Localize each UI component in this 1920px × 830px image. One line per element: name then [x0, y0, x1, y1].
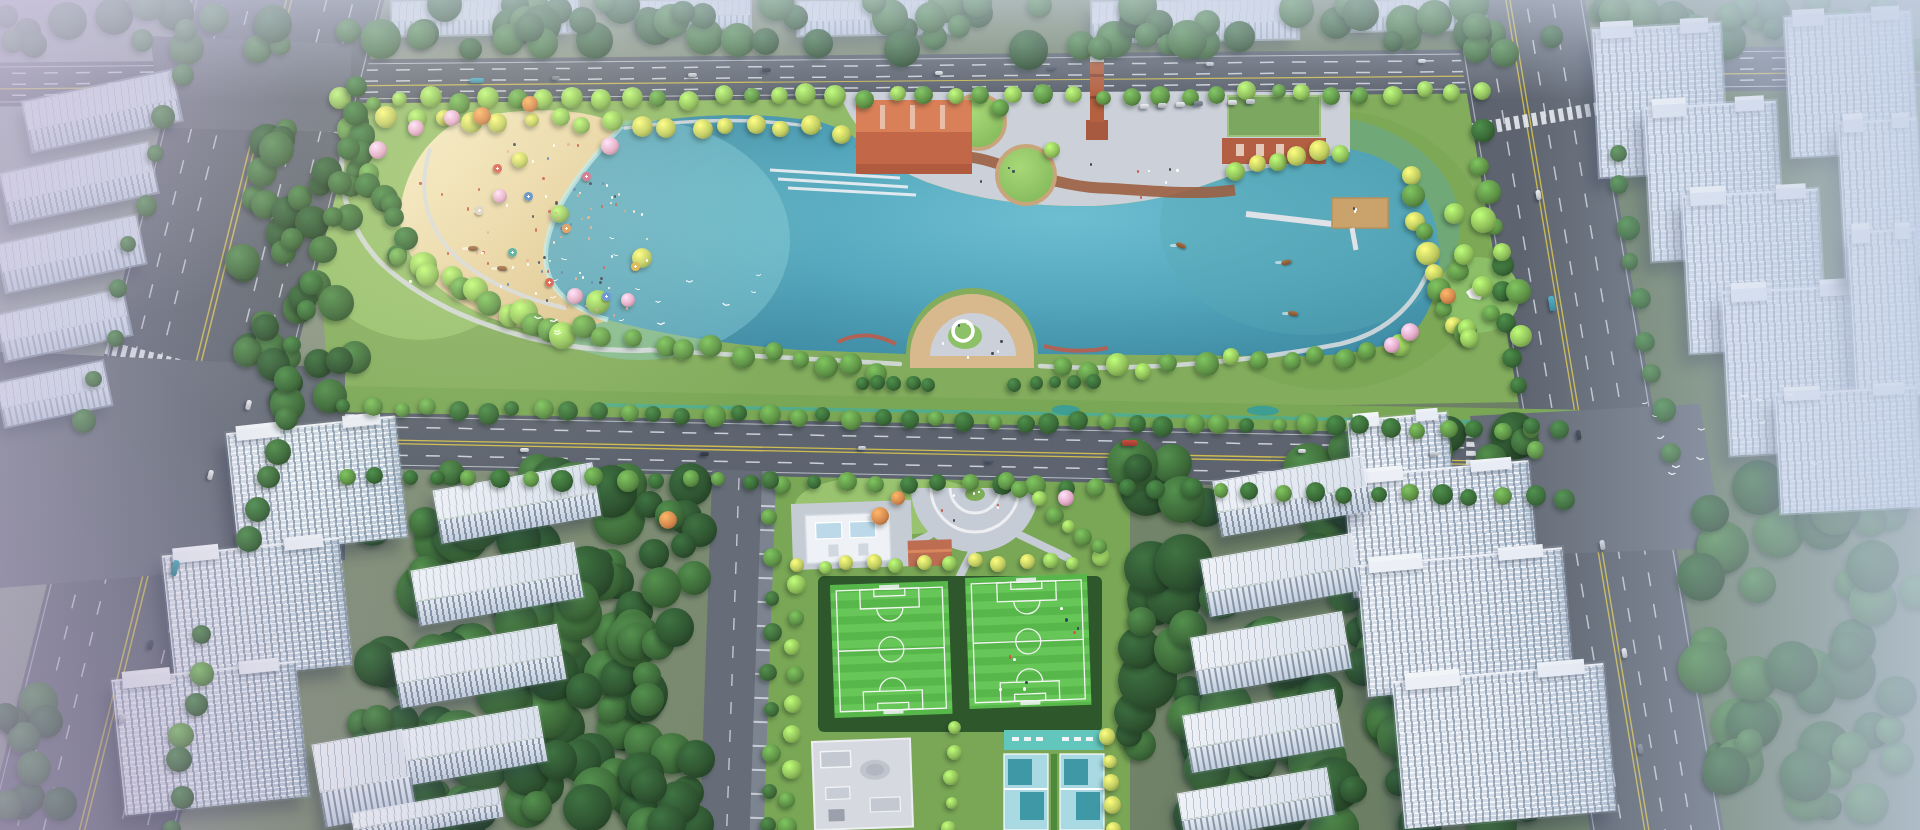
football-players	[1023, 687, 1026, 690]
top-street-trees-south	[855, 90, 874, 109]
vehicle	[688, 73, 697, 77]
main-road-south-trees	[1526, 485, 1547, 506]
sports-north-row	[968, 553, 983, 568]
blossom-tree	[444, 110, 460, 126]
right-avenue-west-trees	[1510, 377, 1527, 394]
bird	[1642, 402, 1648, 405]
bird	[1696, 456, 1704, 461]
beach-crowd	[614, 195, 616, 198]
bird	[756, 274, 761, 277]
center-left-forest	[566, 673, 602, 709]
beach-crowd	[500, 285, 502, 288]
main-road-north-trees	[1152, 416, 1173, 437]
top-band-forest	[948, 15, 970, 37]
main-road-north-trees	[1494, 423, 1511, 440]
swimmers	[566, 305, 568, 308]
swimmers	[579, 192, 581, 195]
right-block-forest-east	[1831, 632, 1869, 670]
right-pocket-park	[1510, 325, 1532, 347]
bird	[561, 258, 567, 262]
vehicle	[1418, 59, 1426, 63]
main-road-north-trees	[645, 406, 661, 422]
main-road-south-trees	[584, 467, 603, 486]
left-avenue-east-trees	[328, 171, 352, 195]
bird	[751, 291, 756, 294]
main-road-north-trees	[1297, 413, 1318, 434]
south-plaza-visitors	[953, 519, 955, 522]
football-players	[1060, 607, 1063, 610]
top-street-trees-south	[1237, 81, 1256, 100]
north-park-strip	[772, 121, 789, 138]
beach-umbrella	[545, 278, 554, 287]
right-avenue-east-trees	[1635, 332, 1655, 352]
beach-crowd	[487, 262, 489, 265]
boat	[1176, 241, 1187, 249]
beach-umbrella	[602, 292, 611, 301]
street-west-forest	[641, 567, 682, 608]
top-street-trees-south	[1123, 88, 1141, 106]
main-road-south-trees	[339, 469, 355, 485]
northeast-shore	[1249, 155, 1267, 173]
main-road-north-trees	[1208, 414, 1229, 435]
northeast-shore	[1332, 145, 1350, 163]
beach-crowd	[603, 266, 605, 269]
main-road-north-trees	[1465, 420, 1484, 439]
top-street-trees-south	[622, 87, 643, 108]
beach-crowd	[589, 182, 591, 185]
vehicle	[1228, 100, 1237, 105]
center-left-forest	[597, 694, 626, 723]
south-shore-east	[1054, 357, 1073, 376]
top-street-trees-south	[948, 88, 964, 104]
plaza-north-visitors	[1008, 167, 1010, 170]
bird	[619, 318, 625, 321]
northeast-shore	[1287, 146, 1307, 166]
beach-crowd	[506, 204, 508, 207]
beach-crowd	[487, 231, 489, 234]
south-plaza-visitors	[973, 492, 975, 495]
south-shore-east	[1358, 342, 1376, 360]
south-shore-west	[815, 355, 839, 379]
sports-west-column	[779, 792, 795, 808]
bird	[655, 301, 661, 303]
left-avenue-west-trees	[172, 64, 194, 86]
plaza-north-visitors	[1169, 168, 1171, 171]
swimmers	[646, 238, 648, 241]
north-park-strip	[747, 115, 766, 134]
top-band-forest	[1135, 23, 1159, 47]
top-street-trees-south	[649, 90, 666, 107]
main-road-south-trees	[1119, 479, 1136, 496]
promenade-visitors	[997, 350, 999, 353]
promenade-visitors	[1000, 340, 1002, 343]
right-block-forest-west	[1127, 607, 1156, 636]
southeast-plaza-trees	[1032, 491, 1047, 506]
top-street-trees-south	[1272, 84, 1286, 98]
top-street-trees-south	[795, 83, 816, 104]
vehicle	[552, 76, 560, 80]
plaza-north-visitors	[1165, 181, 1167, 184]
plaza-north-visitors	[1012, 170, 1014, 173]
blossom-tree	[1384, 337, 1400, 353]
west-shore-lower	[477, 291, 502, 316]
sports-north-row	[888, 558, 903, 573]
south-shore-east	[1159, 354, 1177, 372]
left-avenue-east-trees	[274, 366, 301, 393]
main-road-south-trees	[807, 475, 821, 489]
north-park-strip	[552, 108, 570, 126]
bird	[657, 322, 665, 326]
west-shore-lower	[389, 248, 407, 266]
left-avenue-east-trees	[337, 137, 360, 160]
left-avenue-east-trees	[309, 236, 336, 263]
beach-crowd	[599, 281, 601, 284]
main-road-north-trees	[1017, 415, 1035, 433]
south-shore-east	[1250, 351, 1267, 368]
south-plaza-visitors	[941, 509, 943, 512]
top-band-forest	[48, 2, 87, 41]
north-park-strip	[602, 111, 623, 132]
swimmers	[641, 213, 643, 216]
beach-crowd	[555, 201, 557, 204]
top-street-trees-south	[771, 87, 788, 104]
beach-crowd	[561, 271, 563, 274]
right-block-forest-east	[1703, 747, 1750, 794]
top-band-forest	[516, 13, 545, 42]
football-players	[1073, 631, 1076, 634]
northeast-shore	[1269, 153, 1287, 171]
vehicle	[147, 640, 154, 651]
sports-east-column	[1104, 796, 1122, 814]
top-street-trees-south	[1004, 86, 1021, 103]
main-road-north-trees	[449, 401, 470, 422]
right-block-forest-west	[1340, 776, 1367, 803]
top-band-forest	[20, 31, 47, 58]
top-band-forest	[1, 29, 24, 52]
football-players	[1013, 658, 1016, 661]
top-street-trees-south	[1417, 81, 1433, 97]
sports-north-row	[819, 561, 832, 574]
left-avenue-west-trees	[147, 145, 164, 162]
top-street-trees-south	[679, 91, 700, 112]
park-walkers	[481, 252, 483, 255]
vehicle	[1246, 99, 1255, 104]
plaza-north-visitors	[1176, 169, 1178, 172]
promenade-west-poplars	[906, 376, 920, 390]
center-left-forest	[563, 784, 611, 830]
blossom-tree	[601, 137, 619, 155]
southeast-plaza-trees	[1011, 481, 1028, 498]
boat	[1281, 259, 1292, 266]
right-pocket-park	[1460, 329, 1479, 348]
right-avenue-west-trees	[1471, 119, 1495, 143]
beach-crowd	[575, 277, 577, 280]
blossom-tree	[369, 141, 387, 159]
willow_yellow-tree	[512, 152, 528, 168]
sports-middle-column	[943, 770, 958, 785]
main-road-south-trees	[962, 474, 979, 491]
autumn-tree	[871, 507, 889, 525]
right-block-forest-east	[1900, 574, 1920, 610]
right-avenue-west-trees	[1477, 180, 1501, 204]
beach-crowd	[532, 215, 534, 218]
swimmers	[553, 241, 555, 244]
main-road-south-trees	[683, 470, 700, 487]
sports-west-column	[789, 610, 804, 625]
right-avenue-west-trees	[1502, 348, 1522, 368]
south-shore-east	[1284, 352, 1301, 369]
left-avenue-east-trees	[275, 407, 298, 430]
vehicle	[985, 459, 994, 463]
promenade-west-poplars	[921, 378, 935, 392]
top-right-forest	[1541, 25, 1563, 47]
top-street-trees-south	[1208, 86, 1226, 104]
left-top-slab-rows	[0, 289, 131, 361]
blossom-tree	[493, 189, 507, 203]
bird	[613, 253, 618, 257]
top-street-trees-south	[971, 86, 989, 104]
top-band-forest	[255, 7, 291, 43]
swimmers	[581, 218, 583, 221]
main-road-north-trees	[504, 401, 519, 416]
autumn-tree	[522, 96, 538, 112]
bird	[722, 302, 730, 307]
top-street-trees-south	[1096, 91, 1110, 105]
vehicle	[1575, 430, 1582, 441]
beach-crowd	[588, 237, 590, 240]
main-road-north-trees	[875, 409, 892, 426]
beach-umbrella	[582, 172, 591, 181]
main-road-south-trees	[711, 472, 725, 486]
sports-middle-column	[947, 745, 962, 760]
blossom-tree	[408, 120, 424, 136]
beach-crowd	[478, 188, 480, 191]
sports-middle-column	[941, 821, 956, 830]
right-pocket-park	[1444, 203, 1465, 224]
south-plaza-visitors	[997, 506, 999, 509]
beach-crowd	[611, 196, 613, 199]
main-road-south-trees	[1432, 484, 1453, 505]
beach-crowd	[508, 259, 510, 262]
west-shore-upper	[384, 207, 404, 227]
promenade-west-poplars	[870, 375, 885, 390]
top-band-forest	[199, 3, 229, 33]
southwest-corner-forest	[43, 787, 77, 821]
top-street-trees-south	[420, 86, 442, 108]
main-road-south-trees	[403, 470, 418, 485]
vehicle	[1122, 440, 1137, 446]
main-road-north-trees	[395, 403, 409, 417]
top-band-forest	[1027, 0, 1052, 18]
left-avenue-west-trees	[120, 236, 136, 252]
main-road-south-trees	[551, 470, 573, 492]
top-street-trees-south	[1293, 84, 1310, 101]
top-band-forest	[407, 21, 436, 50]
north-park-strip	[801, 115, 821, 135]
main-road-south-trees	[460, 470, 476, 486]
left-avenue-west-trees	[109, 279, 127, 297]
south-plaza-visitors	[953, 494, 955, 497]
beach-crowd	[602, 182, 604, 185]
right-block-forest-east	[1846, 540, 1899, 593]
right-top-towers	[1848, 228, 1920, 397]
inner-street-trees	[763, 548, 782, 567]
top-band-forest	[131, 29, 154, 52]
swimmers	[557, 217, 559, 220]
football-players	[999, 688, 1002, 691]
beach-crowd	[543, 256, 545, 259]
main-road-south-trees	[1401, 484, 1419, 502]
blossom-tree	[567, 288, 583, 304]
right-block-forest-east	[1876, 716, 1904, 744]
beach-crowd	[615, 203, 617, 206]
northeast-shore	[1309, 140, 1329, 160]
main-road-north-trees	[534, 399, 554, 419]
bird	[1697, 428, 1704, 431]
north-park-strip	[832, 125, 851, 144]
top-street-trees-south	[1352, 87, 1369, 104]
south-shore-east	[1106, 353, 1129, 376]
beach-crowd	[546, 299, 548, 302]
right-block-forest-east	[1677, 553, 1725, 601]
top-street-trees-south	[824, 85, 846, 107]
main-road-north-trees	[478, 403, 500, 425]
beach-crowd	[467, 207, 469, 210]
vehicle	[935, 71, 943, 75]
beach-crowd	[590, 226, 592, 229]
beach-umbrella	[631, 262, 640, 271]
east-shore	[1416, 223, 1433, 240]
left-top-slab-rows	[0, 143, 157, 223]
northeast-shore	[1226, 162, 1245, 181]
main-road-north-trees	[901, 410, 919, 428]
center-left-forest	[522, 791, 552, 821]
right-avenue-west-trees	[1470, 157, 1489, 176]
main-road-north-trees	[731, 405, 747, 421]
avenue-belt-forest	[259, 132, 294, 167]
right-avenue-east-trees	[1610, 145, 1627, 162]
left-avenue-bottom-trees	[163, 820, 182, 830]
right-block-forest-east	[1876, 676, 1917, 717]
left-avenue-west-trees	[85, 371, 102, 388]
beach-crowd	[507, 150, 509, 153]
vehicle	[1637, 744, 1644, 755]
top-band-forest	[459, 38, 481, 60]
left-avenue-west-trees	[175, 19, 197, 41]
top-street-trees-south	[392, 92, 406, 106]
sports-east-column	[1106, 822, 1121, 830]
main-road-north-trees	[590, 402, 608, 420]
swimmers	[646, 259, 648, 262]
main-road-north-trees	[364, 397, 383, 416]
main-road-south-trees	[929, 474, 946, 491]
beach-crowd	[538, 261, 540, 264]
north-park-strip	[693, 119, 713, 139]
main-road-south-trees	[430, 471, 445, 486]
sports-north-row	[1066, 557, 1079, 570]
beach-crowd	[553, 144, 555, 147]
right-block-forest-east	[1832, 732, 1869, 769]
right-top-towers	[1775, 386, 1920, 513]
sports-east-column	[1099, 728, 1116, 745]
beach-umbrella	[493, 164, 502, 173]
right-block-forest-east	[1881, 742, 1914, 775]
top-street-trees-south	[715, 85, 733, 103]
beach-crowd	[567, 143, 569, 146]
street-west-forest	[677, 740, 715, 778]
beach-umbrella	[508, 248, 517, 257]
west-shore-lower	[416, 263, 439, 286]
left-avenue-bottom-trees	[171, 786, 194, 809]
beach-crowd	[535, 292, 537, 295]
swimmers	[613, 314, 615, 317]
main-road-north-trees	[790, 409, 808, 427]
sports-north-row	[867, 554, 883, 570]
left-avenue-west-trees	[151, 105, 175, 129]
street-west-forest	[631, 768, 667, 804]
east-shore	[1416, 242, 1440, 266]
north-park-strip	[656, 118, 676, 138]
sports-north-row	[917, 555, 932, 570]
right-block-forest-east	[1846, 783, 1888, 825]
south-shore-west	[624, 329, 642, 347]
swimmers	[633, 210, 635, 213]
street-west-forest	[671, 533, 696, 558]
south-plaza-visitors	[978, 491, 980, 494]
promenade-east-poplars	[1007, 378, 1021, 392]
top-band-forest	[1417, 0, 1452, 35]
east-shore	[1402, 184, 1425, 207]
sports-east-column	[1103, 755, 1117, 769]
distance-haze	[1390, 661, 1618, 830]
generated-layer	[0, 0, 1920, 830]
main-road-south-trees	[1554, 489, 1575, 510]
plaza-north-visitors	[1137, 170, 1139, 173]
south-shore-west	[673, 339, 694, 360]
inner-street-trees	[760, 817, 777, 830]
plaza-north-visitors	[1090, 163, 1092, 166]
main-road-north-trees	[558, 401, 578, 421]
swimmers	[626, 307, 628, 310]
autumn-tree	[659, 511, 677, 529]
beach-crowd	[591, 281, 593, 284]
vehicle	[1535, 190, 1542, 201]
main-road-south-trees	[617, 470, 639, 492]
inner-street-trees	[764, 702, 779, 717]
vehicle	[1140, 104, 1149, 109]
vehicle	[1430, 452, 1439, 456]
street-west-forest	[677, 561, 711, 595]
south-shore-east	[1223, 348, 1240, 365]
avenue-belt-forest	[252, 314, 279, 341]
main-road-south-trees	[1306, 482, 1326, 502]
east-shore	[1402, 166, 1421, 185]
vehicle	[1298, 449, 1306, 453]
top-right-forest	[1763, 19, 1784, 40]
top-band-forest	[752, 28, 779, 55]
top-street-trees-south	[1065, 86, 1082, 103]
promenade-west-poplars	[856, 377, 869, 390]
right-avenue-west-trees	[1527, 441, 1545, 459]
distance-haze	[0, 287, 134, 363]
vehicle	[1548, 296, 1556, 312]
beach-crowd	[547, 157, 549, 160]
southeast-plaza-trees	[1074, 528, 1092, 546]
football-players	[1009, 655, 1012, 658]
beach-crowd	[523, 300, 525, 303]
tree_mid-tree	[991, 99, 1009, 117]
main-road-south-trees	[1182, 478, 1202, 498]
